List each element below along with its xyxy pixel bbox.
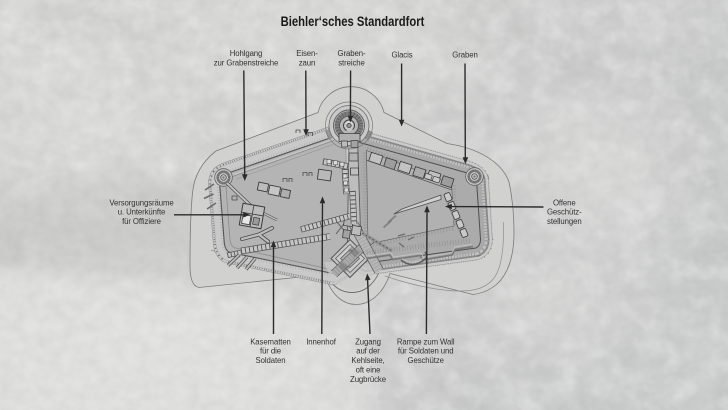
svg-text:Zugang: Zugang bbox=[355, 337, 381, 346]
svg-text:Innenhof: Innenhof bbox=[306, 337, 336, 346]
svg-text:Geschütze: Geschütze bbox=[408, 356, 444, 365]
svg-text:Soldaten: Soldaten bbox=[256, 356, 286, 365]
svg-text:für Offiziere: für Offiziere bbox=[122, 217, 161, 226]
svg-text:Biehler‘sches Standardfort: Biehler‘sches Standardfort bbox=[281, 14, 425, 29]
svg-text:streiche: streiche bbox=[338, 58, 365, 67]
svg-text:Graben: Graben bbox=[452, 51, 477, 60]
svg-text:Zugbrücke: Zugbrücke bbox=[350, 375, 386, 384]
svg-text:Hohlgang: Hohlgang bbox=[230, 49, 263, 58]
svg-text:u. Unterkünfte: u. Unterkünfte bbox=[118, 208, 166, 217]
svg-text:Geschütz-: Geschütz- bbox=[547, 208, 582, 217]
svg-text:Rampe zum Wall: Rampe zum Wall bbox=[397, 337, 455, 346]
svg-text:Eisen-: Eisen- bbox=[296, 49, 318, 58]
svg-text:zaun: zaun bbox=[299, 58, 316, 67]
svg-text:zur Grabenstreiche: zur Grabenstreiche bbox=[214, 58, 279, 67]
svg-text:Graben-: Graben- bbox=[338, 49, 366, 58]
svg-text:oft eine: oft eine bbox=[356, 366, 381, 375]
svg-text:für die: für die bbox=[260, 347, 281, 356]
svg-text:stellungen: stellungen bbox=[547, 217, 582, 226]
svg-text:Kasematten: Kasematten bbox=[250, 337, 291, 346]
svg-text:auf der: auf der bbox=[356, 347, 380, 356]
svg-text:für Soldaten und: für Soldaten und bbox=[398, 347, 454, 356]
svg-text:Kehlseite,: Kehlseite, bbox=[351, 356, 384, 365]
svg-text:Versorgungsräume: Versorgungsräume bbox=[109, 198, 173, 207]
svg-text:Offene: Offene bbox=[553, 198, 576, 207]
svg-text:Glacis: Glacis bbox=[391, 51, 412, 60]
